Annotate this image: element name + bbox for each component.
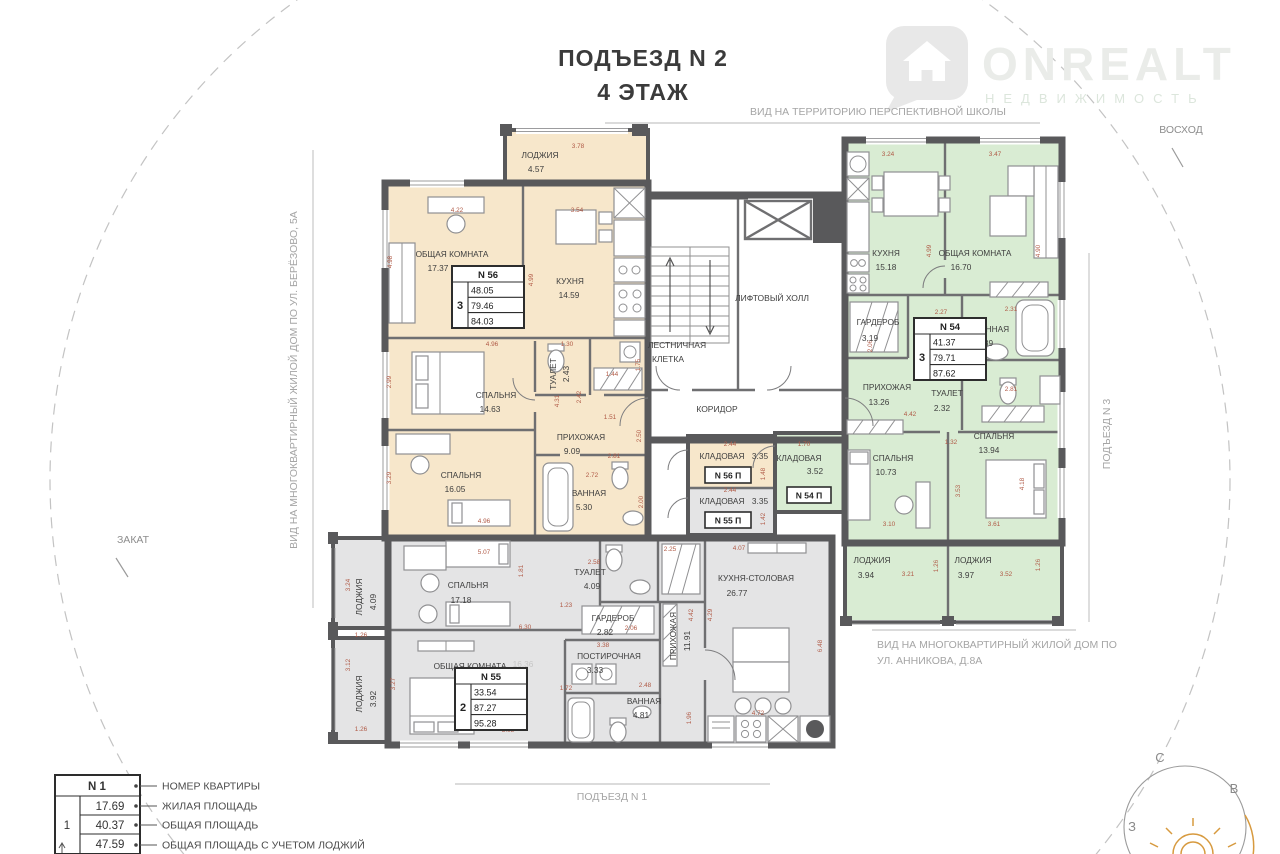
sun-icon: [1150, 818, 1236, 854]
dimension: 4.99: [528, 273, 535, 286]
corridor-label: КОРИДОР: [696, 404, 738, 414]
stairwell-label-1: ЛЕСТНИЧНАЯ: [648, 340, 706, 350]
apartment-info-box-55: N 55 2 33.54 87.27 95.28: [455, 668, 527, 730]
logo-subtitle: НЕДВИЖИМОСТЬ: [985, 91, 1206, 106]
common-area-labels: ЛЕСТНИЧНАЯ КЛЕТКА ЛИФТОВЫЙ ХОЛЛ КОРИДОР: [648, 292, 809, 414]
dimension: 3.29: [386, 471, 393, 484]
dimension: 3.10: [883, 521, 896, 528]
legend-label-number: НОМЕР КВАРТИРЫ: [162, 781, 260, 793]
apt55-rooms: 2: [460, 702, 466, 714]
dimension: 3.52: [1000, 571, 1013, 578]
stairwell-label-2: КЛЕТКА: [652, 354, 684, 364]
room-name: СПАЛЬНЯ: [448, 580, 489, 590]
room-name: СПАЛЬНЯ: [476, 390, 517, 400]
dimension: 6.48: [817, 639, 824, 652]
dimension: 1.23: [560, 602, 573, 609]
dimension: 2.06: [625, 625, 638, 632]
room-name: КУХНЯ: [872, 248, 900, 258]
room-area: 3.52: [807, 466, 824, 476]
apt56-living: 48.05: [471, 286, 494, 296]
apt55-total: 87.27: [474, 703, 497, 713]
dimension: 3.21: [902, 571, 915, 578]
onrealt-logo: ONREALT НЕДВИЖИМОСТЬ: [886, 26, 1236, 112]
room-area: 4.09: [584, 581, 601, 591]
dimension: 3.54: [571, 207, 584, 214]
legend-living: 17.69: [96, 801, 125, 813]
label-berezovo-view: ВИД НА МНОГОКВАРТИРНЫЙ ЖИЛОЙ ДОМ ПО УЛ. …: [287, 211, 300, 549]
dimension: 1.26: [1035, 558, 1042, 571]
apt55-living: 33.54: [474, 688, 497, 698]
apt55-number: N 55: [481, 672, 502, 683]
room-name: СПАЛЬНЯ: [974, 431, 1015, 441]
dimension: 2.58: [588, 559, 601, 566]
room-name: СПАЛЬНЯ: [873, 453, 914, 463]
apartment-info-box-56: N 56 3 48.05 79.46 84.03: [452, 266, 524, 328]
room-area: 14.63: [480, 404, 501, 414]
dimension: 2.44: [724, 441, 737, 448]
room-name: ЛОДЖИЯ: [522, 150, 559, 160]
dimension: 1.81: [518, 564, 525, 577]
apt55-total-loggia: 95.28: [474, 719, 497, 729]
room-name: КЛАДОВАЯ: [700, 496, 745, 506]
elevator-shaft: [745, 201, 811, 239]
dimension: 3.78: [572, 143, 585, 150]
dimension: 1.26: [355, 632, 368, 639]
logo-brand: ONREALT: [982, 38, 1236, 90]
room-name: ЛОДЖИЯ: [354, 579, 364, 616]
room-name: ТУАЛЕТ: [931, 388, 963, 398]
room-area: 4.81: [633, 710, 650, 720]
dimension: 2.72: [586, 472, 599, 479]
dimension: 6.30: [519, 624, 532, 631]
dimension: 4.07: [733, 545, 746, 552]
room-area: 17.37: [428, 263, 449, 273]
dimension: 4.42: [688, 608, 695, 621]
apt54-total-loggia: 87.62: [933, 369, 956, 379]
dimension: 3.53: [955, 484, 962, 497]
dimension: 2.31: [1005, 306, 1018, 313]
room-name: ТУАЛЕТ: [548, 358, 558, 390]
room-name: ПРИХОЖАЯ: [557, 432, 605, 442]
stairs: [651, 247, 729, 343]
apt56-number: N 56: [478, 270, 498, 281]
legend-label-total-loggia: ОБЩАЯ ПЛОЩАДЬ С УЧЕТОМ ЛОДЖИЙ: [162, 839, 365, 852]
room-area: 3.35: [752, 451, 769, 461]
room-area: 17.18: [451, 595, 472, 605]
floor-plan-svg: ONREALT НЕДВИЖИМОСТЬ ПОДЪЕЗД N 2 4 ЭТАЖ …: [0, 0, 1280, 854]
room-area: 15.18: [876, 262, 897, 272]
legend-number: N 1: [88, 781, 107, 793]
dimension: 4.96: [478, 518, 491, 525]
floor-plan-page: ONREALT НЕДВИЖИМОСТЬ ПОДЪЕЗД N 2 4 ЭТАЖ …: [0, 0, 1280, 854]
room-name: ТУАЛЕТ: [574, 567, 606, 577]
dimension: 2.25: [664, 546, 677, 553]
compass-north: С: [1155, 750, 1164, 765]
label-annikova-2: УЛ. АННИКОВА, Д.8А: [877, 655, 982, 667]
room-name: ВАННАЯ: [572, 488, 606, 498]
title-line1: ПОДЪЕЗД N 2: [558, 45, 728, 71]
apartment-info-box-54: N 54 3 41.37 79.71 87.62: [914, 318, 986, 380]
dimension: 2.42: [576, 390, 583, 403]
room-area: 2.32: [934, 403, 951, 413]
room-area: 4.09: [368, 594, 378, 611]
room-name: КЛАДОВАЯ: [777, 453, 822, 463]
apt54-number: N 54: [940, 322, 961, 333]
dimension: 1.48: [760, 467, 767, 480]
dimension: 3.24: [882, 151, 895, 158]
room-area: 10.73: [876, 467, 897, 477]
dimension: 1.96: [686, 711, 693, 724]
room-name: ГАРДЕРОБ: [857, 317, 900, 327]
dimension: 4.22: [451, 207, 464, 214]
dimension: 3.27: [390, 677, 397, 690]
room-area: 2.43: [561, 366, 571, 383]
dimension: 2.27: [935, 309, 948, 316]
room-name: КЛАДОВАЯ: [700, 451, 745, 461]
compass: С В З: [1124, 750, 1254, 854]
dimension: 3.38: [597, 642, 610, 649]
legend-rooms: 1: [64, 820, 70, 832]
room-area: 5.30: [576, 502, 593, 512]
room-area: 13.26: [869, 397, 890, 407]
dimension: 4.42: [904, 411, 917, 418]
dimension: 2.44: [724, 487, 737, 494]
room-name: ОБЩАЯ КОМНАТА: [939, 248, 1012, 258]
compass-east: В: [1230, 781, 1239, 796]
compass-west: З: [1128, 819, 1136, 834]
dimension: 5.07: [478, 549, 491, 556]
room-area: 3.35: [752, 496, 769, 506]
title-line2: 4 ЭТАЖ: [597, 79, 689, 105]
room-area: 3.92: [368, 691, 378, 708]
dimension: 1.32: [945, 439, 958, 446]
room-area: 9.09: [564, 446, 581, 456]
room-area: 26.77: [727, 588, 748, 598]
room-area: 14.59: [559, 290, 580, 300]
dimension: 1.26: [933, 559, 940, 572]
room-name: КУХНЯ-СТОЛОВАЯ: [718, 573, 794, 583]
room-name: ГАРДЕРОБ: [592, 613, 635, 623]
room-name: ПРИХОЖАЯ: [863, 382, 911, 392]
room-name: ЛОДЖИЯ: [955, 555, 992, 565]
dimension: 1.30: [561, 341, 574, 348]
dimension: 1.51: [604, 414, 617, 421]
dimension: 1.70: [798, 441, 811, 448]
dimension: 2.99: [386, 375, 393, 388]
legend-label-living: ЖИЛАЯ ПЛОЩАДЬ: [162, 801, 258, 813]
label-sunrise: ВОСХОД: [1159, 124, 1203, 136]
room-name: КУХНЯ: [556, 276, 584, 286]
label-annikova-1: ВИД НА МНОГОКВАРТИРНЫЙ ЖИЛОЙ ДОМ ПО: [877, 638, 1117, 651]
dimension: 4.99: [926, 244, 933, 257]
legend-total: 40.37: [96, 820, 125, 832]
apt54-total: 79.71: [933, 353, 956, 363]
label-entrance1: ПОДЪЕЗД N 1: [577, 791, 648, 803]
dimension: 2.50: [636, 429, 643, 442]
apt54-rooms: 3: [919, 352, 925, 364]
dimension: 3.12: [345, 658, 352, 671]
room-area: 16.05: [445, 484, 466, 494]
legend-total-loggia: 47.59: [96, 839, 125, 851]
dimension: 4.29: [707, 608, 714, 621]
storage-tag-55: N 55 П: [715, 516, 741, 526]
apt56-total-loggia: 84.03: [471, 317, 494, 327]
dimension: 4.98: [387, 255, 394, 268]
room-area: 3.97: [958, 570, 975, 580]
room-area: 11.91: [682, 631, 692, 652]
room-name: ПОСТИРОЧНАЯ: [577, 651, 641, 661]
dimension: 1.42: [760, 512, 767, 525]
room-area: 3.33: [587, 665, 604, 675]
room-name: ЛОДЖИЯ: [354, 676, 364, 713]
room-area: 16.70: [951, 262, 972, 272]
page-title: ПОДЪЕЗД N 2 4 ЭТАЖ: [558, 45, 728, 105]
room-area: 3.94: [858, 570, 875, 580]
dimension: 1.72: [560, 685, 573, 692]
room-area: 4.57: [528, 164, 545, 174]
dimension: 4.72: [752, 710, 765, 717]
dimension: 3.24: [345, 578, 352, 591]
label-entrance3: ПОДЪЕЗД N 3: [1101, 399, 1113, 470]
dimension: 3.47: [989, 151, 1002, 158]
room-area: 13.94: [979, 445, 1000, 455]
room-name: ЛОДЖИЯ: [854, 555, 891, 565]
apt56-total: 79.46: [471, 301, 494, 311]
room-name: СПАЛЬНЯ: [441, 470, 482, 480]
label-school-view: ВИД НА ТЕРРИТОРИЮ ПЕРСПЕКТИВНОЙ ШКОЛЫ: [750, 105, 1006, 118]
dimension: 4.18: [1019, 477, 1026, 490]
dimension: 1.75: [635, 358, 642, 371]
dimension: 1.44: [606, 371, 619, 378]
room-area: 3.19: [862, 333, 879, 343]
apt54-living: 41.37: [933, 338, 956, 348]
dimension: 4.31: [554, 394, 561, 407]
dimension: 2.00: [638, 495, 645, 508]
room-name: ВАННАЯ: [627, 696, 661, 706]
dimension: 4.90: [1035, 244, 1042, 257]
legend-label-total: ОБЩАЯ ПЛОЩАДЬ: [162, 820, 258, 832]
legend: N 1 17.69 1 40.37 47.59 НОМЕР КВАРТИРЫ Ж…: [55, 775, 365, 854]
room-name: ПРИХОЖАЯ: [668, 612, 678, 660]
room-area: 2.82: [597, 627, 614, 637]
dimension: 3.61: [988, 521, 1001, 528]
label-sunset: ЗАКАТ: [117, 534, 150, 546]
dimension: 2.48: [639, 682, 652, 689]
storage-tag-54: N 54 П: [796, 491, 822, 501]
dimension: 4.96: [486, 341, 499, 348]
dimension: 1.26: [355, 726, 368, 733]
apt56-rooms: 3: [457, 300, 463, 312]
dimension: 2.81: [608, 453, 621, 460]
room-name: ОБЩАЯ КОМНАТА: [416, 249, 489, 259]
storage-tag-56: N 56 П: [715, 471, 741, 481]
dimension: 2.81: [1005, 386, 1018, 393]
lift-hall-label: ЛИФТОВЫЙ ХОЛЛ: [735, 292, 809, 303]
